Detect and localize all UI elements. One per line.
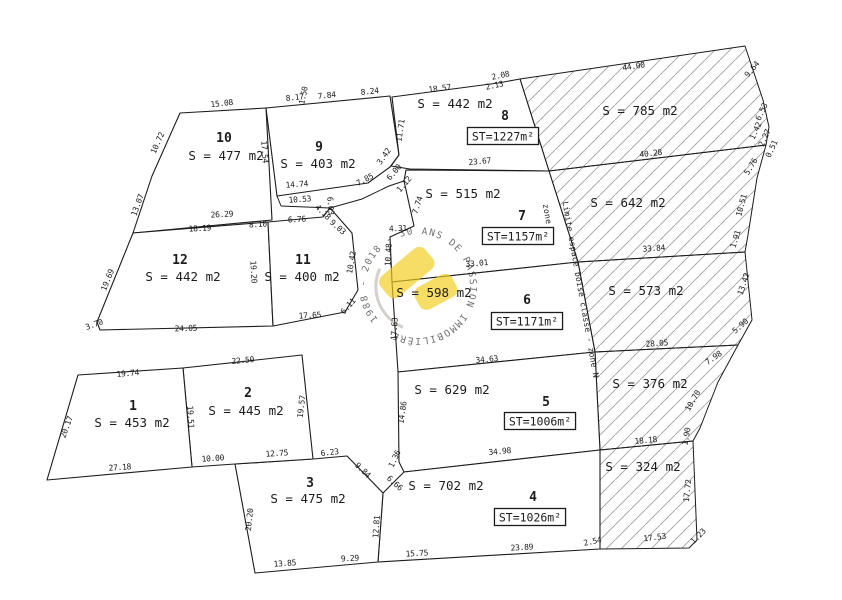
dimension-label: 18.19 [188, 223, 212, 233]
zone-area-label-3: S = 573 m2 [608, 283, 683, 298]
dimension-label: 19.51 [185, 405, 195, 429]
dimension-label: 24.05 [174, 324, 197, 334]
parcel-9-area-label: S = 403 m2 [280, 156, 355, 171]
parcel-11-number: 11 [295, 253, 311, 268]
parcel-8-area-label: S = 442 m2 [417, 96, 492, 111]
dimension-label: 4.31 [389, 224, 408, 234]
parcel-10-number: 10 [216, 131, 232, 146]
parcel-9-number: 9 [315, 140, 323, 155]
parcel-11-area-label: S = 400 m2 [264, 269, 339, 284]
dimension-label: 9.29 [341, 554, 360, 564]
parcel-7-area-label: S = 515 m2 [425, 186, 500, 201]
dimension-label: 33.84 [642, 243, 666, 254]
parcel-7-number: 7 [518, 209, 526, 224]
parcel-3-area-label: S = 475 m2 [270, 491, 345, 506]
dimension-label: 12.75 [265, 448, 289, 459]
dimension-label: 26.29 [210, 209, 234, 219]
dimension-label: 23.89 [510, 542, 534, 552]
parcel-5-area-label: S = 629 m2 [414, 382, 489, 397]
parcel-3-number: 3 [306, 476, 314, 491]
zone-area-label-1: S = 785 m2 [602, 103, 677, 118]
parcel-2-area-label: S = 445 m2 [208, 403, 283, 418]
dimension-label: 6.76 [288, 215, 307, 225]
parcel-4-area-label: S = 702 m2 [408, 478, 483, 493]
dimension-label: 27.18 [108, 462, 132, 473]
zone-area-label-4: S = 376 m2 [612, 376, 687, 391]
dimension-label: 8.10 [249, 220, 268, 230]
parcel-10-area-label: S = 477 m2 [188, 148, 263, 163]
parcel-5-st-label: ST=1006m² [509, 415, 571, 429]
corridor-line-1 [277, 196, 281, 206]
dimension-label: 19.20 [248, 260, 258, 284]
parcel-4-number: 4 [529, 490, 537, 505]
parcel-2-number: 2 [244, 386, 252, 401]
dimension-label: 10.00 [201, 453, 225, 464]
dimension-label: 17.65 [298, 310, 322, 320]
plan-drawing: 1988 - 2018 - 30 ANS DE PASSION IMMOBILI… [0, 0, 842, 600]
dimension-label: 1.50 [297, 85, 310, 105]
dimension-label: 28.05 [645, 338, 669, 349]
dimension-label: 17.63 [389, 317, 399, 341]
parcel-12-area-label: S = 442 m2 [145, 269, 220, 284]
zone-area-label-2: S = 642 m2 [590, 195, 665, 210]
dimension-label: 13.85 [273, 558, 297, 569]
dimension-label: 7.84 [317, 90, 336, 101]
parcel-10-outline [133, 108, 272, 233]
dimension-label: 14.74 [285, 179, 309, 190]
parcel-8-number: 8 [501, 109, 509, 124]
parcel-1-area-label: S = 453 m2 [94, 415, 169, 430]
parcel-6-st-label: ST=1171m² [496, 315, 558, 329]
zone-area-label-5: S = 324 m2 [605, 459, 680, 474]
parcel-6-number: 6 [523, 293, 531, 308]
dimension-label: 10.48 [383, 243, 393, 267]
parcel-8-st-label: ST=1227m² [472, 130, 534, 144]
dimension-label: 8.24 [360, 86, 379, 97]
parcel-4-st-label: ST=1026m² [499, 511, 561, 525]
parcel-6-area-label: S = 598 m2 [396, 285, 471, 300]
parcel-7-st-label: ST=1157m² [487, 230, 549, 244]
dimension-label: 12.81 [371, 515, 382, 539]
parcel-5-number: 5 [542, 395, 550, 410]
hatch-zone-3 [578, 252, 752, 352]
parcel-1-number: 1 [129, 399, 137, 414]
dimension-label: 15.08 [210, 98, 234, 109]
dimension-label: 10.53 [288, 194, 312, 205]
cadastral-subdivision-plan: 1988 - 2018 - 30 ANS DE PASSION IMMOBILI… [0, 0, 842, 600]
dimension-label: 15.75 [405, 548, 429, 558]
parcel-12-number: 12 [172, 253, 188, 268]
